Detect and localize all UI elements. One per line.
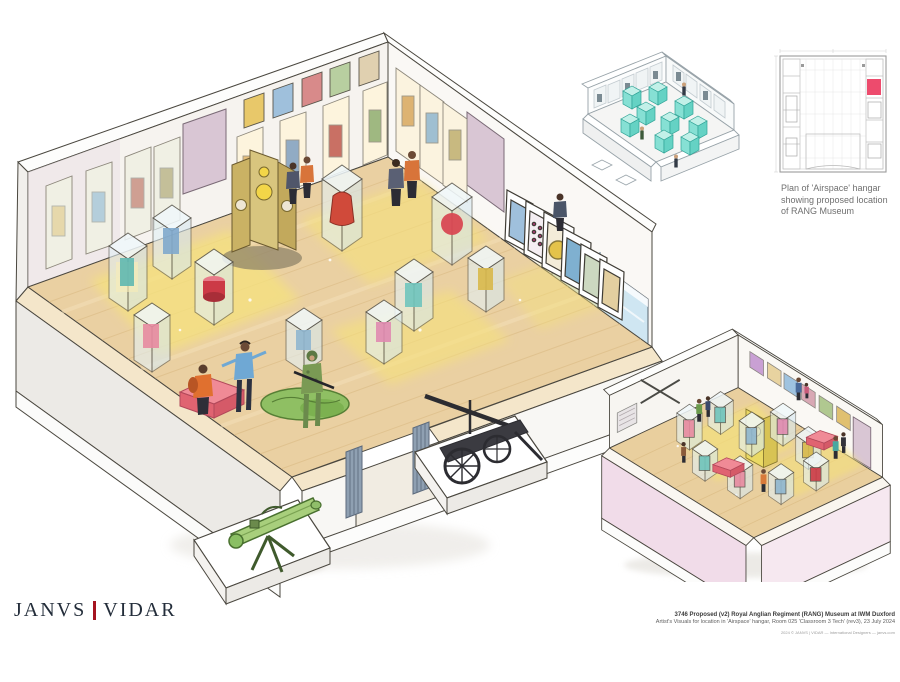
plan-caption-line: Plan of 'Airspace' hangar <box>781 183 900 195</box>
secondary-museum-visual <box>590 318 900 582</box>
plan-caption-line: of RANG Museum <box>781 206 900 218</box>
left-wall-door <box>183 109 226 194</box>
logo-separator-bar <box>93 601 96 620</box>
display-case <box>286 308 322 372</box>
presentation-board: Plan of 'Airspace' hangar showing propos… <box>0 0 900 682</box>
display-case <box>366 300 402 364</box>
display-case <box>153 205 191 279</box>
massing-sketch-model <box>566 46 742 186</box>
logo-vidar: VIDAR <box>103 599 176 622</box>
logo-janvs: JANVS <box>14 599 86 622</box>
studio-logo: JANVS VIDAR <box>14 599 177 622</box>
display-case-uniform <box>322 165 362 251</box>
caption-credit: 2024 © JANVS | VIDAR — International Des… <box>465 630 895 636</box>
caption-subtitle: Artist's Visuals for location in 'Airspa… <box>465 619 895 626</box>
display-case <box>468 246 504 312</box>
caption-title: 3746 Proposed (v2) Royal Anglian Regimen… <box>465 611 895 619</box>
plan-caption: Plan of 'Airspace' hangar showing propos… <box>781 183 900 218</box>
plan-highlight-rang-location <box>867 79 881 95</box>
plan-caption-line: showing proposed location <box>781 195 900 207</box>
project-caption: 3746 Proposed (v2) Royal Anglian Regimen… <box>465 611 895 636</box>
display-case-drum <box>195 249 233 325</box>
display-case <box>109 233 147 311</box>
hangar-floor-plan <box>774 46 892 178</box>
display-case <box>134 303 170 372</box>
display-case <box>432 183 472 265</box>
